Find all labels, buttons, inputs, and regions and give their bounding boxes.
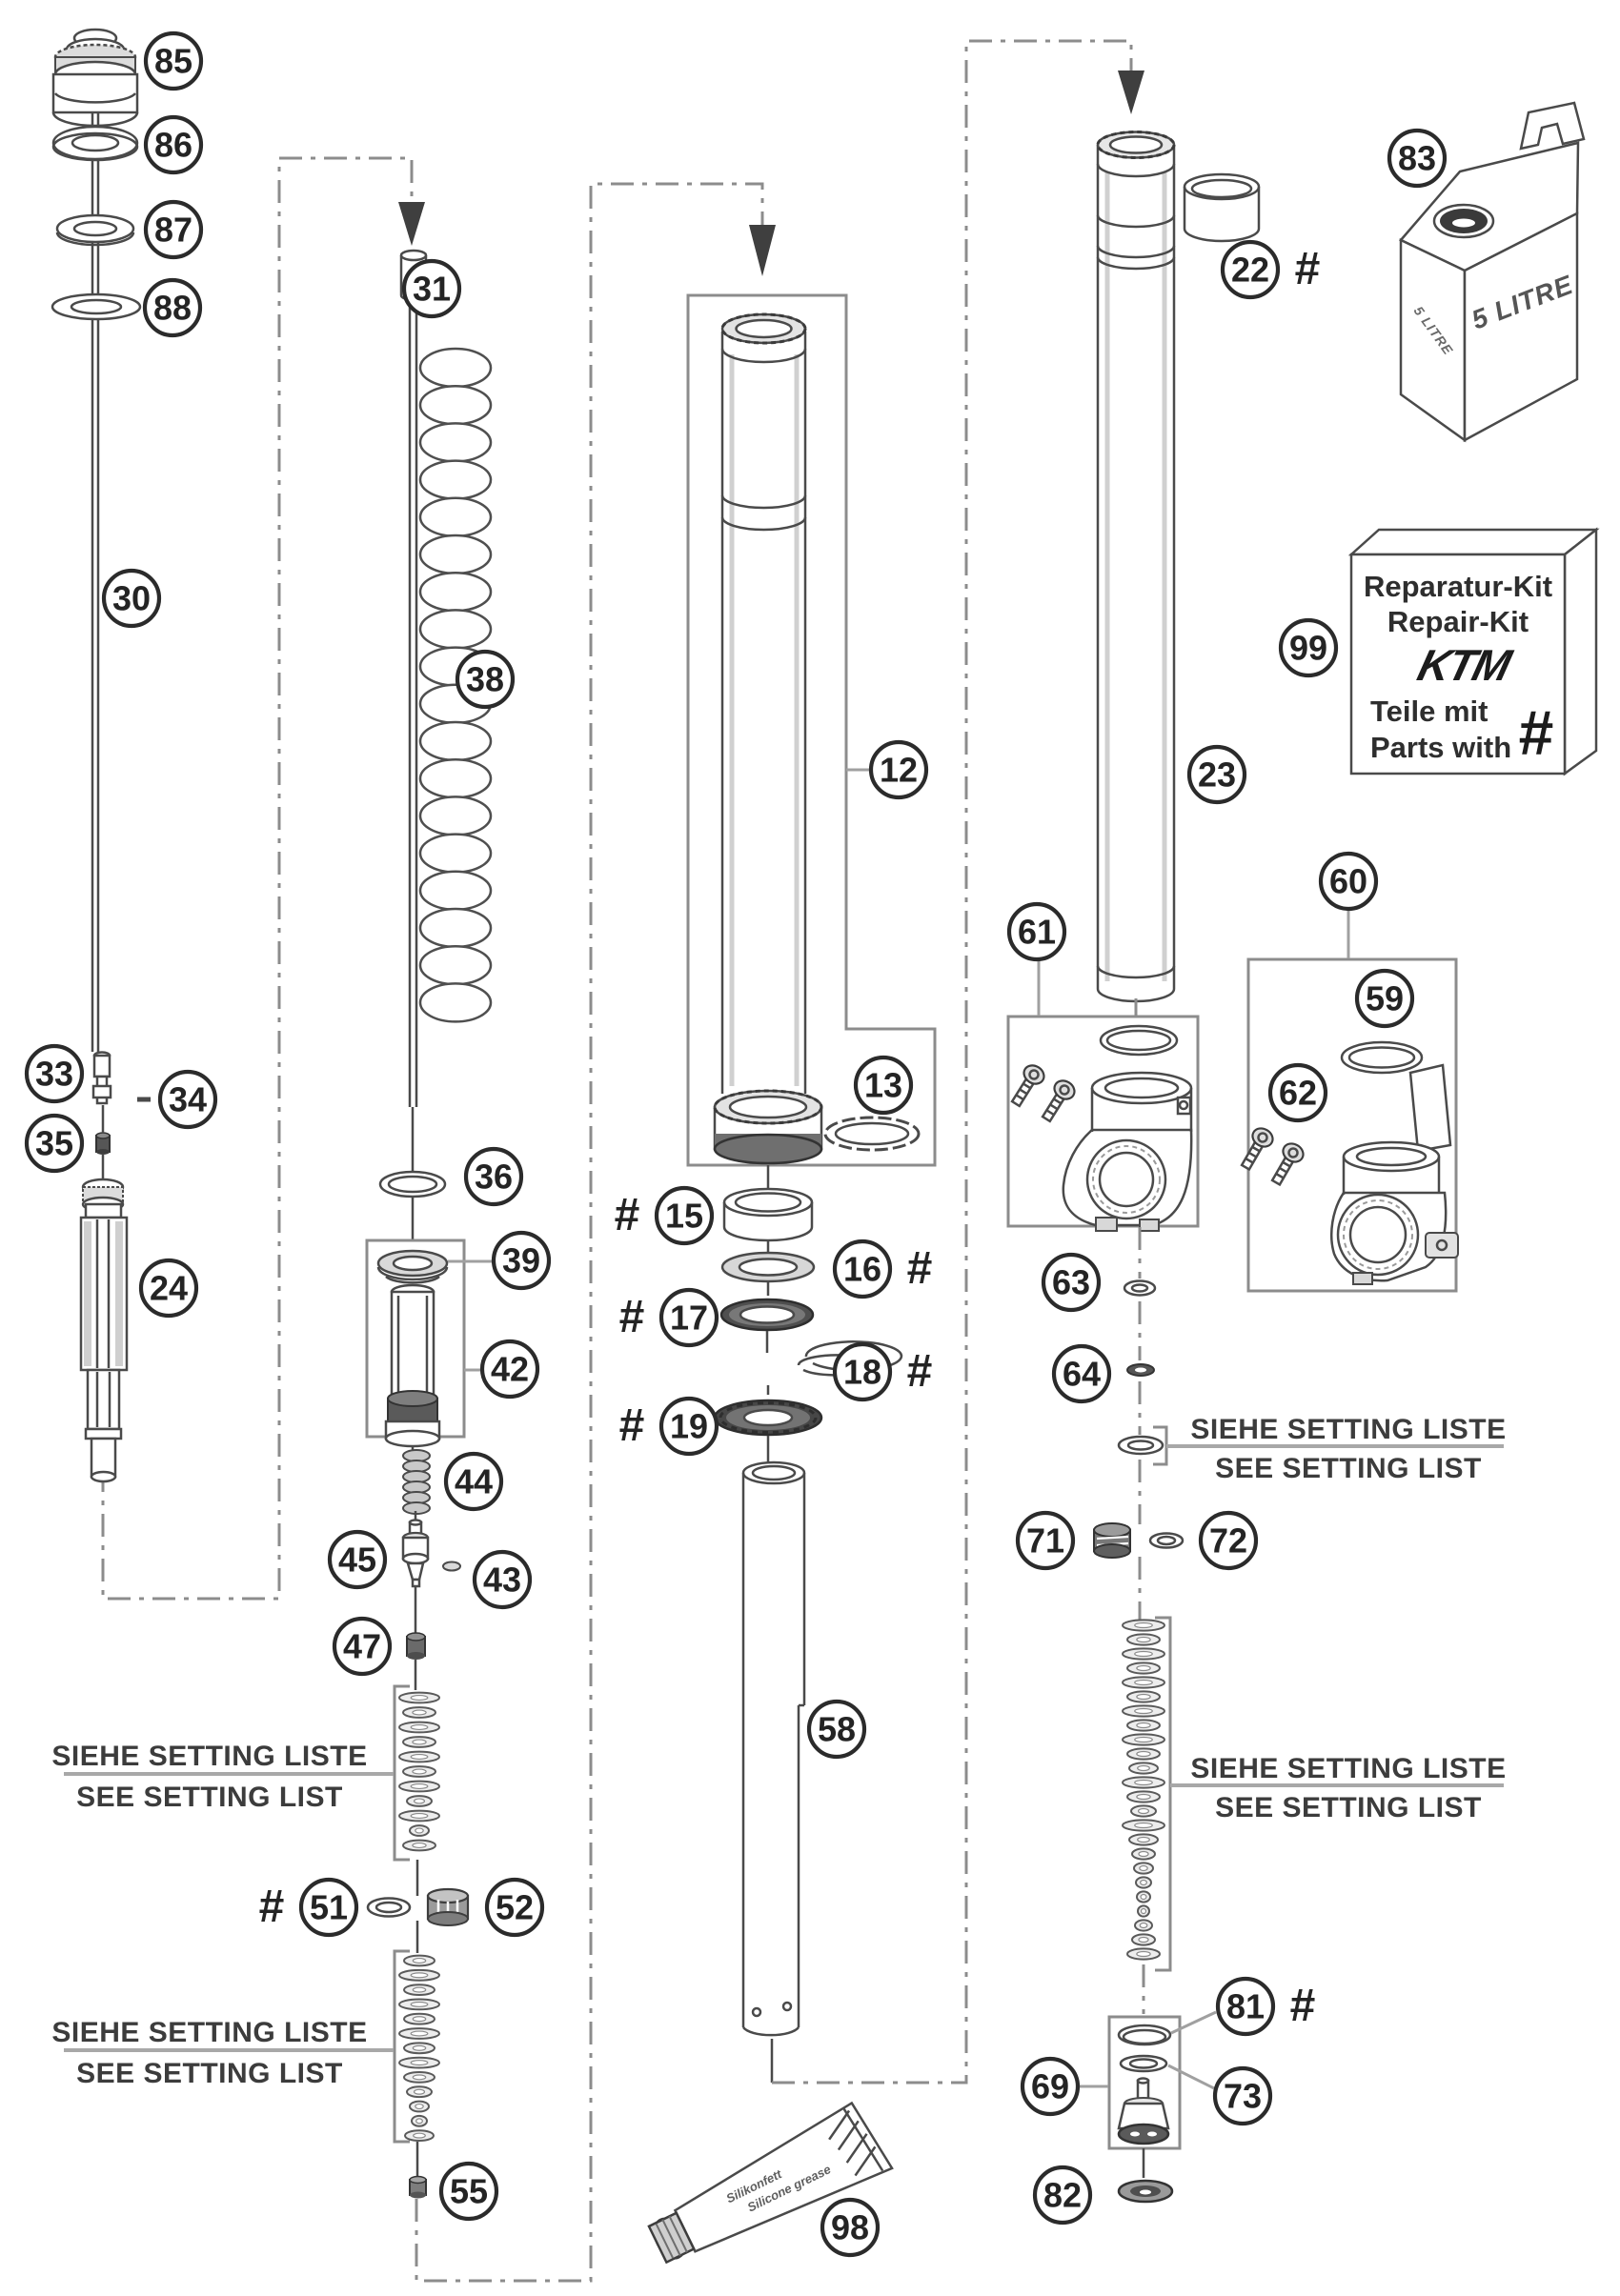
note-line-1: SIEHE SETTING LISTE <box>1190 1753 1506 1784</box>
callout-number: 47 <box>343 1627 381 1666</box>
push-rod-30 <box>92 111 98 1052</box>
callout-number: 35 <box>35 1124 73 1163</box>
note-line-2: SEE SETTING LIST <box>1215 1792 1482 1823</box>
callout-51: 51# <box>259 1880 356 1935</box>
hash-mark-icon: # <box>615 1190 640 1240</box>
arrow-down-icon <box>398 202 425 246</box>
repair-kit-line-2: Repair-Kit <box>1387 605 1529 638</box>
repair-kit-line-1: Reparatur-Kit <box>1364 570 1552 603</box>
callout-number: 17 <box>670 1299 708 1338</box>
callout-number: 64 <box>1063 1355 1101 1394</box>
piston-13 <box>715 1091 821 1163</box>
callout-43: 43 <box>475 1552 530 1607</box>
setting-note-left-2: SIEHE SETTING LISTE SEE SETTING LIST <box>51 2017 394 2089</box>
callout-number: 72 <box>1209 1521 1247 1561</box>
callout-number: 60 <box>1329 862 1367 901</box>
callout-23: 23 <box>1189 747 1245 802</box>
valve-45 <box>403 1511 428 1586</box>
callout-71: 71 <box>1018 1513 1073 1568</box>
callout-number: 30 <box>112 579 151 618</box>
note-line-1: SIEHE SETTING LISTE <box>51 2017 367 2048</box>
repair-kit-line-3: Teile mit <box>1370 695 1488 728</box>
shim-stack-2 <box>399 1956 439 2141</box>
callout-number: 43 <box>483 1561 521 1600</box>
arrow-down-icon <box>749 225 776 276</box>
callout-63: 63 <box>1043 1255 1099 1310</box>
callout-number: 45 <box>338 1541 376 1580</box>
axle-clamp-61-contents <box>1007 1026 1192 1231</box>
callout-number: 23 <box>1198 755 1236 795</box>
nut-47 <box>407 1587 425 1690</box>
repair-kit-box-99: Reparatur-Kit Repair-Kit KTM Teile mit P… <box>1351 530 1596 774</box>
washer-87 <box>57 215 133 245</box>
callout-number: 15 <box>665 1197 703 1236</box>
washer-88 <box>52 294 140 319</box>
callout-number: 52 <box>496 1888 534 1927</box>
callout-18: 18# <box>835 1344 932 1400</box>
callout-45: 45 <box>330 1532 385 1587</box>
callout-19: 19# <box>619 1399 717 1454</box>
pin-43 <box>443 1562 460 1571</box>
callout-72: 72 <box>1201 1513 1256 1568</box>
ktm-logo: KTM <box>1413 641 1517 690</box>
hash-mark-icon: # <box>259 1882 285 1932</box>
oring-36 <box>380 1172 445 1240</box>
callout-24: 24 <box>141 1260 196 1316</box>
callout-17: 17# <box>619 1290 717 1345</box>
valve-71 <box>1094 1523 1130 1558</box>
callout-number: 87 <box>154 211 192 250</box>
spring-44 <box>403 1450 430 1514</box>
callout-number: 33 <box>35 1055 73 1094</box>
callout-number: 99 <box>1289 629 1327 668</box>
callout-number: 85 <box>154 42 192 81</box>
callout-number: 42 <box>491 1350 529 1389</box>
callout-number: 86 <box>154 126 192 165</box>
callout-73: 73 <box>1215 2068 1270 2124</box>
callout-16: 16# <box>835 1241 932 1297</box>
nut-35 <box>96 1105 110 1181</box>
callout-number: 58 <box>818 1710 856 1749</box>
hash-mark-icon: # <box>1290 1981 1316 2031</box>
callout-number: 98 <box>831 2208 869 2247</box>
callout-number: 63 <box>1052 1263 1090 1302</box>
repair-kit-line-4: Parts with <box>1370 731 1511 764</box>
note-line-2: SEE SETTING LIST <box>76 2058 343 2089</box>
screw-cap-22 <box>1185 174 1259 241</box>
parts-diagram-page: Silikonfett Silicone grease 5 LITRE 5 L <box>0 0 1620 2296</box>
note-line-1: SIEHE SETTING LISTE <box>1190 1414 1506 1445</box>
callout-39: 39 <box>494 1233 549 1288</box>
bushing-15 <box>724 1189 812 1252</box>
outer-tube-detail-box <box>688 295 935 1165</box>
callout-number: 38 <box>466 660 504 699</box>
callout-number: 83 <box>1398 139 1436 178</box>
callout-number: 61 <box>1018 913 1056 952</box>
callout-number: 44 <box>455 1462 493 1501</box>
callout-number: 39 <box>502 1241 540 1280</box>
callout-38: 38 <box>457 652 513 707</box>
hash-mark-icon: # <box>1295 244 1321 294</box>
callout-55: 55 <box>441 2164 496 2219</box>
callout-15: 15# <box>615 1188 712 1243</box>
callout-number: 36 <box>475 1158 513 1197</box>
callout-number: 82 <box>1043 2176 1082 2215</box>
oil-seal-17 <box>721 1299 813 1353</box>
callout-52: 52 <box>487 1880 542 1935</box>
callout-82: 82 <box>1035 2167 1090 2223</box>
repair-kit-hash: # <box>1519 697 1554 768</box>
fork-cap-85 <box>53 30 137 126</box>
callout-34: 34 <box>160 1072 215 1127</box>
cartridge-piston-42 <box>386 1285 439 1452</box>
washer-72 <box>1150 1534 1183 1548</box>
washer-64 <box>1127 1364 1154 1376</box>
callout-number: 51 <box>310 1888 348 1927</box>
callout-number: 22 <box>1231 251 1269 290</box>
adjuster-body-24 <box>81 1179 127 1481</box>
shim-stack-1 <box>399 1693 439 1851</box>
callout-98: 98 <box>822 2200 878 2255</box>
nut-82 <box>1119 2148 1172 2202</box>
callout-number: 81 <box>1226 1987 1265 2026</box>
valve-69-contents <box>1119 2025 1170 2144</box>
callout-number: 16 <box>843 1250 881 1289</box>
shim-stack-3 <box>1123 1620 1164 1959</box>
exploded-diagram: Silikonfett Silicone grease 5 LITRE 5 L <box>0 0 1620 2296</box>
callout-69: 69 <box>1023 2059 1078 2114</box>
inner-tube-23 <box>1098 132 1174 1002</box>
rod-end-33 <box>93 1053 111 1104</box>
callout-62: 62 <box>1270 1065 1326 1120</box>
callout-number: 24 <box>150 1269 188 1308</box>
cartridge-tube-58 <box>743 1462 804 2035</box>
washer-63 <box>1124 1281 1155 1296</box>
callout-number: 31 <box>413 270 451 309</box>
dust-seal-19 <box>715 1400 821 1461</box>
setting-washer <box>1119 1427 1166 1464</box>
callout-30: 30 <box>104 571 159 626</box>
callout-42: 42 <box>482 1341 537 1397</box>
callout-13: 13 <box>856 1057 911 1113</box>
callout-47: 47 <box>334 1619 390 1674</box>
callout-number: 18 <box>843 1353 881 1392</box>
hash-mark-icon: # <box>619 1400 645 1451</box>
hash-mark-icon: # <box>907 1346 933 1397</box>
callout-87: 87 <box>146 202 201 257</box>
outer-tube-12 <box>722 314 805 1094</box>
callout-number: 12 <box>880 751 918 790</box>
oring-51 <box>368 1899 410 1917</box>
callout-number: 13 <box>864 1066 902 1105</box>
callout-31: 31 <box>404 261 459 316</box>
callout-35: 35 <box>27 1116 82 1171</box>
callout-60: 60 <box>1321 854 1376 909</box>
callout-number: 55 <box>450 2172 488 2211</box>
note-line-1: SIEHE SETTING LISTE <box>51 1741 367 1772</box>
callout-number: 19 <box>670 1407 708 1446</box>
callout-81: 81# <box>1218 1979 1315 2034</box>
hash-mark-icon: # <box>907 1243 933 1294</box>
spring-washer-86 <box>53 127 137 160</box>
piston-52 <box>428 1889 468 1925</box>
nut-55 <box>410 2177 426 2199</box>
setting-note-right-2: SIEHE SETTING LISTE SEE SETTING LIST <box>1170 1753 1507 1823</box>
callout-64: 64 <box>1054 1346 1109 1401</box>
setting-note-right-1: SIEHE SETTING LISTE SEE SETTING LIST <box>1166 1414 1507 1484</box>
callout-number: 34 <box>169 1080 207 1119</box>
callout-61: 61 <box>1009 904 1064 959</box>
note-line-2: SEE SETTING LIST <box>1215 1453 1482 1484</box>
callout-number: 73 <box>1224 2077 1262 2116</box>
callout-12: 12 <box>871 742 926 797</box>
callout-number: 88 <box>153 289 192 328</box>
hash-mark-icon: # <box>619 1292 645 1342</box>
callout-number: 59 <box>1366 979 1404 1018</box>
callout-22: 22# <box>1223 242 1320 297</box>
callout-88: 88 <box>145 280 200 335</box>
callout-36: 36 <box>466 1149 521 1204</box>
callout-83: 83 <box>1389 131 1445 186</box>
callout-99: 99 <box>1281 620 1336 675</box>
callout-44: 44 <box>446 1454 501 1509</box>
assembly-path-left <box>103 158 425 1599</box>
setting-note-left-1: SIEHE SETTING LISTE SEE SETTING LIST <box>51 1741 394 1813</box>
note-line-2: SEE SETTING LIST <box>76 1782 343 1813</box>
callout-33: 33 <box>27 1046 82 1101</box>
arrow-down-icon <box>1118 70 1144 114</box>
callout-number: 71 <box>1026 1521 1064 1561</box>
washer-16 <box>722 1253 814 1296</box>
assembly-path-right <box>772 41 1144 2083</box>
slide-ring-13 <box>825 1118 919 1150</box>
callout-85: 85 <box>146 33 201 89</box>
callout-59: 59 <box>1357 971 1412 1026</box>
callout-86: 86 <box>146 117 201 172</box>
callout-number: 69 <box>1031 2067 1069 2106</box>
axle-clamp-60-contents <box>1236 1042 1458 1284</box>
cap-nut-39 <box>378 1251 447 1282</box>
callout-number: 62 <box>1279 1074 1317 1113</box>
callout-58: 58 <box>809 1702 864 1757</box>
